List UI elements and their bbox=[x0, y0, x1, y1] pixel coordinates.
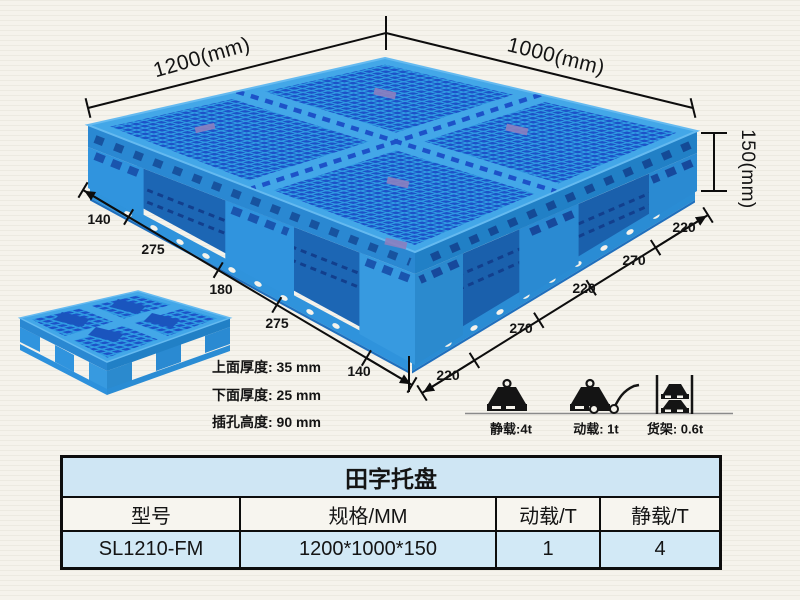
small-pallet-image bbox=[20, 291, 230, 395]
cell-dynamic-load: 1 bbox=[497, 532, 601, 567]
dynamic-load-label: 动载: 1t bbox=[573, 419, 619, 438]
dim-left-seg-2: 180 bbox=[209, 281, 232, 297]
rack-load-icon bbox=[657, 375, 692, 414]
dim-left-seg-0: 140 bbox=[87, 211, 110, 227]
dim-height-label: 150(mm) bbox=[736, 129, 758, 209]
col-header-model: 型号 bbox=[63, 498, 241, 530]
static-load-label: 静载:4t bbox=[490, 419, 532, 438]
col-header-size: 规格/MM bbox=[241, 498, 497, 530]
cell-model: SL1210-FM bbox=[63, 532, 241, 567]
cell-size: 1200*1000*150 bbox=[241, 532, 497, 567]
rack-load-label: 货架: 0.6t bbox=[647, 419, 703, 438]
dim-right-seg-2: 220 bbox=[572, 280, 595, 296]
dim-left-seg-4: 140 bbox=[347, 363, 370, 379]
load-rating-icons bbox=[465, 375, 733, 414]
table-header-row: 型号 规格/MM 动载/T 静载/T bbox=[63, 498, 719, 532]
spec-fork-height: 插孔高度: 90 mm bbox=[212, 412, 321, 432]
spec-table: 田字托盘 型号 规格/MM 动载/T 静载/T SL1210-FM 1200*1… bbox=[60, 455, 722, 570]
dim-left-seg-1: 275 bbox=[141, 241, 164, 257]
dim-right-seg-3: 270 bbox=[622, 252, 645, 268]
spec-bottom-thickness: 下面厚度: 25 mm bbox=[212, 385, 321, 405]
spec-top-thickness: 上面厚度: 35 mm bbox=[212, 357, 321, 377]
dynamic-load-icon bbox=[570, 380, 639, 413]
dim-right-seg-1: 270 bbox=[509, 320, 532, 336]
dim-right-seg-4: 220 bbox=[672, 219, 695, 235]
col-header-static-load: 静载/T bbox=[601, 498, 719, 530]
col-header-dynamic-load: 动载/T bbox=[497, 498, 601, 530]
product-spec-sheet: 1200(mm) 1000(mm) 150(mm) 140 275 180 27… bbox=[0, 0, 800, 600]
table-title: 田字托盘 bbox=[63, 458, 719, 498]
static-load-icon bbox=[487, 380, 527, 411]
table-data-row: SL1210-FM 1200*1000*150 1 4 bbox=[63, 532, 719, 567]
cell-static-load: 4 bbox=[601, 532, 719, 567]
dim-left-seg-3: 275 bbox=[265, 315, 288, 331]
dim-right-seg-0: 220 bbox=[436, 367, 459, 383]
